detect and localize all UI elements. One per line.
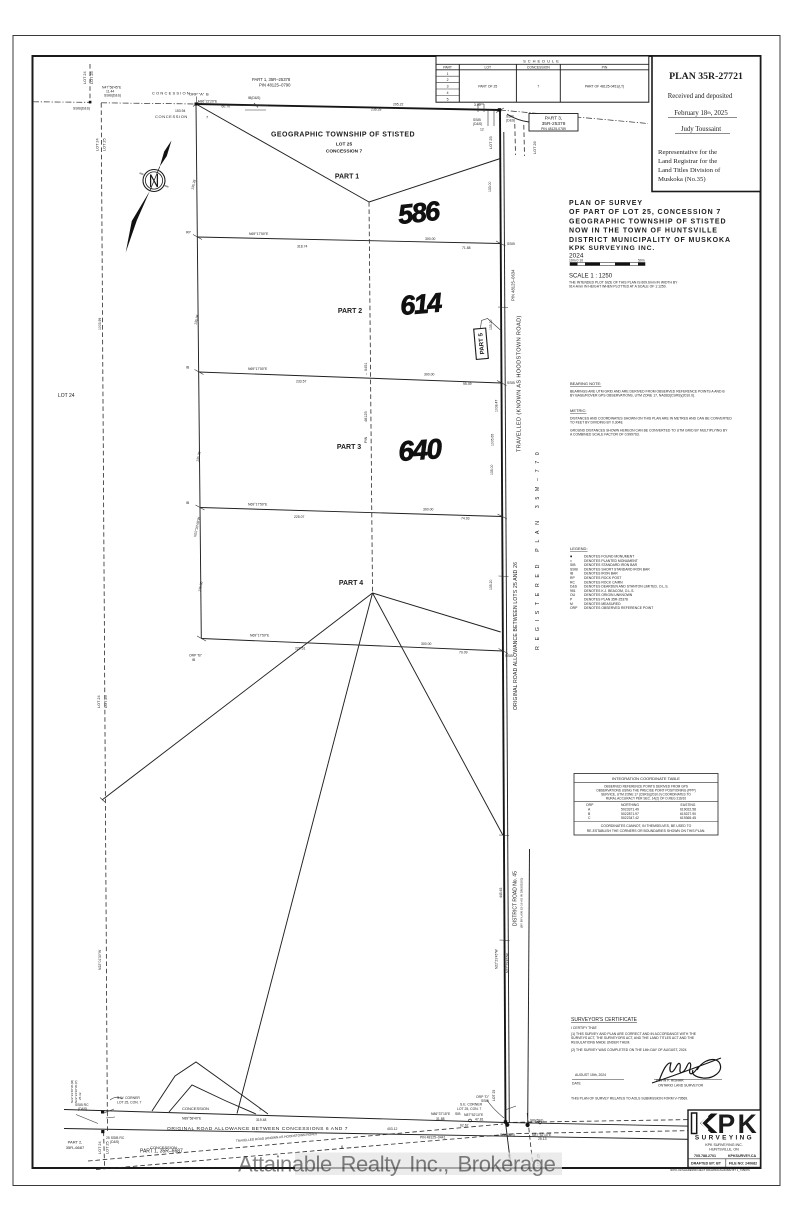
svg-text:PART 1, 35R–25378: PART 1, 35R–25378 xyxy=(252,77,291,82)
svg-text:TRAVELLED (KNOWN AS HOODSTOWN: TRAVELLED (KNOWN AS HOODSTOWN ROAD) xyxy=(517,315,523,452)
svg-text:640: 640 xyxy=(397,433,443,467)
svg-text:N69°17'50"E: N69°17'50"E xyxy=(250,634,270,638)
svg-text:CONCESSION: CONCESSION xyxy=(152,91,191,96)
svg-text:Received and deposited: Received and deposited xyxy=(668,93,733,100)
svg-text:295.22: 295.22 xyxy=(393,103,403,107)
svg-text:PART 1, 35R–6687: PART 1, 35R–6687 xyxy=(140,1149,183,1155)
svg-text:Land Registrar for the: Land Registrar for the xyxy=(658,158,717,165)
svg-text:A COMBINED SCALE FACTOR OF 0.9: A COMBINED SCALE FACTOR OF 0.999763. xyxy=(570,433,640,437)
svg-text:OF PART OF LOT 25, CONCES: OF PART OF LOT 25, CONCESSION 7 xyxy=(569,209,721,216)
svg-text:PART: PART xyxy=(443,65,452,69)
svg-text:RP: RP xyxy=(186,231,191,235)
svg-text:N69°17'50"E: N69°17'50"E xyxy=(248,503,268,507)
svg-text:PIN 48125–0634: PIN 48125–0634 xyxy=(511,269,516,301)
svg-text:4: 4 xyxy=(447,91,449,95)
svg-text:SCALE 1 : 1250: SCALE 1 : 1250 xyxy=(569,274,613,280)
svg-text:N22°29'45"W: N22°29'45"W xyxy=(506,952,510,973)
svg-text:N87°52'10"E: N87°52'10"E xyxy=(464,1113,484,1117)
svg-text:KPKSURVEY.CA: KPKSURVEY.CA xyxy=(728,1154,756,1158)
svg-text:RE-ESTABLISH THE CORNERS OR: RE-ESTABLISH THE CORNERS OR BOUNDARIES S… xyxy=(587,829,706,833)
svg-text:N86°37'15"E: N86°37'15"E xyxy=(431,1112,451,1116)
svg-text:CONCESSION: CONCESSION xyxy=(182,1106,209,1111)
svg-text:PART 1: PART 1 xyxy=(335,174,359,181)
svg-text:586: 586 xyxy=(396,196,442,230)
svg-text:Judy Toussaint: Judy Toussaint xyxy=(681,126,721,133)
svg-text:71.88: 71.88 xyxy=(462,246,471,250)
svg-text:PART OF 25: PART OF 25 xyxy=(478,85,497,89)
svg-text:LOT 24: LOT 24 xyxy=(97,695,101,708)
svg-text:PART 3: PART 3 xyxy=(337,444,361,451)
svg-text:62.67: 62.67 xyxy=(460,1124,469,1128)
svg-text:1: 1 xyxy=(447,72,449,76)
svg-text:135.20: 135.20 xyxy=(489,320,493,330)
svg-text:229.61: 229.61 xyxy=(295,647,305,651)
svg-text:KEVIN P. RISHAR: KEVIN P. RISHAR xyxy=(656,1079,684,1083)
svg-text:95.49: 95.49 xyxy=(463,382,472,386)
svg-text:IB(D&S): IB(D&S) xyxy=(248,96,260,100)
svg-text:PART 2: PART 2 xyxy=(338,308,362,315)
svg-text:S.E. CORNER: S.E. CORNER xyxy=(460,1103,483,1107)
svg-text:3.00: 3.00 xyxy=(474,103,481,107)
svg-text:25.32: 25.32 xyxy=(78,1092,82,1100)
svg-text:236.28: 236.28 xyxy=(371,108,381,112)
svg-text:RURAL ACCURACY PER SEC. 14(: RURAL ACCURACY PER SEC. 14(2) OF O.REG 2… xyxy=(606,797,687,801)
svg-text:AUGUST 15th, 2024: AUGUST 15th, 2024 xyxy=(575,1073,606,1077)
svg-text:ONTARIO LAND SURVEYOR: ONTARIO LAND SURVEYOR xyxy=(658,1084,704,1088)
svg-text:705.788.2701: 705.788.2701 xyxy=(694,1154,716,1158)
svg-text:EASTING: EASTING xyxy=(681,803,696,807)
svg-text:300.00: 300.00 xyxy=(423,508,433,512)
svg-text:SURVEYOR'S CERTIFICATE: SURVEYOR'S CERTIFICATE xyxy=(571,1017,638,1023)
svg-text:GEOGRAPHIC TOWNSHIP OF STISTED: GEOGRAPHIC TOWNSHIP OF STISTED xyxy=(271,132,415,139)
svg-text:(BY BY-LAW 63-16 AS IN DM: (BY BY-LAW 63-16 AS IN DM305303) xyxy=(520,878,524,928)
svg-text:LOT 26: LOT 26 xyxy=(533,141,537,154)
svg-text:LOT 24: LOT 24 xyxy=(83,71,87,84)
svg-text:HUNTSVILLE, ON: HUNTSVILLE, ON xyxy=(709,1148,739,1152)
svg-text:I CERTIFY THAT:: I CERTIFY THAT: xyxy=(571,1026,597,1030)
svg-text:153.94: 153.94 xyxy=(175,109,185,113)
svg-text:PIN 48125-0789: PIN 48125-0789 xyxy=(541,127,566,131)
svg-text:300.00: 300.00 xyxy=(425,237,435,241)
svg-text:5023371.49: 5023371.49 xyxy=(621,807,639,811)
svg-text:DRAFTED BY: BT: DRAFTED BY: BT xyxy=(691,1162,722,1166)
svg-text:1005.65: 1005.65 xyxy=(491,434,495,446)
svg-text:BEARING NOTE:: BEARING NOTE: xyxy=(570,381,601,386)
svg-text:135.20: 135.20 xyxy=(489,580,493,590)
svg-text:SCHEDULE: SCHEDULE xyxy=(523,59,561,64)
svg-text:5: 5 xyxy=(447,97,449,101)
svg-text:METRIC:: METRIC: xyxy=(570,408,586,413)
svg-text:REGULATIONS MADE UNDER THEM.: REGULATIONS MADE UNDER THEM. xyxy=(571,1040,630,1044)
svg-text:Muskoka (No.35): Muskoka (No.35) xyxy=(658,176,706,183)
svg-text:50m: 50m xyxy=(638,259,645,263)
svg-text:ORP: ORP xyxy=(570,606,578,610)
svg-text:25.13: 25.13 xyxy=(538,1137,547,1141)
svg-text:35R–6687: 35R–6687 xyxy=(66,1145,85,1150)
svg-text:ORIGINAL ROAD ALLOWANCE BETWEE: ORIGINAL ROAD ALLOWANCE BETWEEN LOTS 25 … xyxy=(513,562,519,710)
svg-text:LOT 24: LOT 24 xyxy=(98,1141,102,1154)
svg-text:COORDINATES CANNOT, IN THEM: COORDINATES CANNOT, IN THEMSELVES, BE US… xyxy=(601,824,692,828)
svg-text:PIN: PIN xyxy=(602,65,608,69)
svg-text:LOT 24: LOT 24 xyxy=(58,393,75,399)
svg-text:LOT 25, CON. 7: LOT 25, CON. 7 xyxy=(457,1107,482,1111)
svg-text:SSIB(D&S): SSIB(D&S) xyxy=(73,107,90,111)
svg-text:47.81: 47.81 xyxy=(475,1118,484,1122)
svg-text:135.00: 135.00 xyxy=(490,465,494,475)
svg-text:PART 3,: PART 3, xyxy=(545,116,563,122)
svg-text:INTEGRATION COORDINATE TABLE: INTEGRATION COORDINATE TABLE xyxy=(612,776,680,781)
svg-text:LOT 25: LOT 25 xyxy=(489,136,493,149)
svg-text:3: 3 xyxy=(447,85,449,89)
svg-text:133.00: 133.00 xyxy=(488,182,492,192)
svg-text:B: B xyxy=(206,92,209,97)
svg-text:NOW IN THE TOWN OF HUNTSV: NOW IN THE TOWN OF HUNTSVILLE xyxy=(569,228,718,235)
svg-text:ORIGINAL ROAD ALLOWANCE BETWEE: ORIGINAL ROAD ALLOWANCE BETWEEN CONCESSI… xyxy=(167,1126,348,1132)
svg-text:N86°22'20"E: N86°22'20"E xyxy=(198,100,218,104)
svg-text:LOT 25: LOT 25 xyxy=(106,1141,110,1154)
svg-text:31.88: 31.88 xyxy=(436,1117,445,1121)
svg-text:SSIB: SSIB xyxy=(507,381,515,385)
svg-text:(D&S): (D&S) xyxy=(78,1107,87,1111)
svg-text:70.09: 70.09 xyxy=(459,651,468,655)
svg-text:ORP "B": ORP "B" xyxy=(189,654,203,658)
svg-text:619365.45: 619365.45 xyxy=(680,816,696,820)
svg-text:5022347.42: 5022347.42 xyxy=(621,816,639,820)
svg-text:(2) THE SURVEY WAS COMPLETED O: (2) THE SURVEY WAS COMPLETED ON THE 14th… xyxy=(571,1048,687,1052)
svg-text:PART OF 48125-0451(LT): PART OF 48125-0451(LT) xyxy=(585,85,624,89)
svg-text:(D&S): (D&S) xyxy=(506,119,515,123)
svg-text:12: 12 xyxy=(480,128,484,132)
svg-text:619227.90: 619227.90 xyxy=(680,812,696,816)
svg-text:CONCESSION 7: CONCESSION 7 xyxy=(326,149,363,155)
svg-text:7: 7 xyxy=(537,85,539,89)
svg-text:SSIB: SSIB xyxy=(505,654,513,658)
svg-text:KPK SURVEYING INC.: KPK SURVEYING INC. xyxy=(569,245,655,252)
svg-text:233.57: 233.57 xyxy=(296,380,306,384)
svg-text:N69°17'50"E: N69°17'50"E xyxy=(248,367,268,371)
svg-text:PLAN 35R-27721: PLAN 35R-27721 xyxy=(669,71,743,82)
svg-text:BY BASE/ROVER GPS OBSERVATIONS: BY BASE/ROVER GPS OBSERVATIONS, UTM ZONE… xyxy=(570,394,695,398)
svg-text:REGISTERED PLAN 35M–770: REGISTERED PLAN 35M–770 xyxy=(535,447,541,650)
svg-text:CONCESSION: CONCESSION xyxy=(527,65,550,69)
svg-text:SURVEYING: SURVEYING xyxy=(695,1135,754,1142)
svg-text:SSIB(AG): SSIB(AG) xyxy=(500,1133,515,1137)
svg-text:SIB: SIB xyxy=(455,1112,461,1116)
svg-text:ORP "A": ORP "A" xyxy=(189,92,205,97)
svg-text:N22°23'45"W: N22°23'45"W xyxy=(495,948,499,969)
svg-text:\\KPK-01\SHARE\PROJECT DRAWING: \\KPK-01\SHARE\PROJECT DRAWINGS\240682 B… xyxy=(670,1168,750,1172)
svg-text:300.00: 300.00 xyxy=(421,642,431,646)
svg-text:300.00: 300.00 xyxy=(424,373,434,377)
svg-text:DATE: DATE xyxy=(572,1082,582,1086)
svg-text:LOT 25: LOT 25 xyxy=(492,1090,496,1101)
svg-text:ORP: ORP xyxy=(586,803,594,807)
svg-text:FILE NO: 240682: FILE NO: 240682 xyxy=(729,1162,757,1166)
svg-text:N89°58'40"E: N89°58'40"E xyxy=(182,1117,202,1121)
svg-text:NORTHING: NORTHING xyxy=(621,803,639,807)
svg-text:914.4mm IN HEIGHT WHEN PLOTTED: 914.4mm IN HEIGHT WHEN PLOTTED AT A SCAL… xyxy=(569,285,667,289)
svg-text:403.12: 403.12 xyxy=(387,1127,397,1131)
svg-text:GEOGRAPHIC TOWNSHIP OF STIS: GEOGRAPHIC TOWNSHIP OF STISTED xyxy=(569,218,726,225)
svg-text:LOT 25, CON. 7: LOT 25, CON. 7 xyxy=(117,1101,142,1105)
svg-text:SSIB: SSIB xyxy=(507,242,515,246)
svg-text:KPK SURVEYING INC.: KPK SURVEYING INC. xyxy=(705,1143,742,1147)
svg-text:LEGEND:: LEGEND: xyxy=(570,546,588,551)
svg-text:74.93: 74.93 xyxy=(461,517,470,521)
svg-text:48125: 48125 xyxy=(364,411,368,422)
svg-text:(D&S): (D&S) xyxy=(473,122,482,126)
svg-text:N69°17'50"E: N69°17'50"E xyxy=(249,232,269,236)
svg-text:DISTRICT MUNICIPALITY OF MU: DISTRICT MUNICIPALITY OF MUSKOKA xyxy=(569,237,731,244)
svg-text:Representative for the: Representative for the xyxy=(658,149,717,156)
svg-text:PART 2,: PART 2, xyxy=(68,1140,83,1145)
svg-text:SIB(691): SIB(691) xyxy=(530,1119,543,1123)
svg-text:445.63: 445.63 xyxy=(499,888,503,898)
svg-text:Land Titles Division of: Land Titles Division of xyxy=(658,167,721,174)
svg-text:N22°01'30"W: N22°01'30"W xyxy=(98,949,102,970)
svg-text:DISTRICT ROAD No. 45: DISTRICT ROAD No. 45 xyxy=(513,871,519,926)
svg-text:2: 2 xyxy=(447,78,449,82)
svg-text:PIN 48125–0441: PIN 48125–0441 xyxy=(420,1136,446,1140)
svg-text:319.48: 319.48 xyxy=(256,1118,266,1122)
svg-text:LOT 25: LOT 25 xyxy=(90,71,94,84)
svg-text:LOT 25: LOT 25 xyxy=(336,142,353,148)
svg-text:(D&S): (D&S) xyxy=(110,1140,119,1144)
svg-text:1008.47: 1008.47 xyxy=(495,400,499,412)
svg-text:LOT 24: LOT 24 xyxy=(96,138,100,151)
svg-text:619022.58: 619022.58 xyxy=(680,807,696,811)
svg-text:60.70: 60.70 xyxy=(222,105,231,109)
svg-text:THIS PLAN OF SURVEY RELATES TO: THIS PLAN OF SURVEY RELATES TO AOLS SUBM… xyxy=(571,1097,688,1101)
svg-text:318.74: 318.74 xyxy=(297,245,307,249)
svg-text:10m 0 10: 10m 0 10 xyxy=(569,259,583,263)
svg-text:PIN 48125–0790: PIN 48125–0790 xyxy=(259,83,291,88)
svg-text:LOT: LOT xyxy=(484,65,491,69)
svg-text:5022871.97: 5022871.97 xyxy=(621,812,639,816)
svg-text:TO FEET BY DIVIDING BY 0.3048.: TO FEET BY DIVIDING BY 0.3048. xyxy=(570,421,623,425)
svg-text:LOT 25: LOT 25 xyxy=(104,695,108,708)
svg-text:CONCESSION: CONCESSION xyxy=(155,114,188,119)
svg-text:S.W. CORNER: S.W. CORNER xyxy=(117,1096,140,1100)
svg-text:614: 614 xyxy=(399,287,443,321)
svg-text:LOT 25: LOT 25 xyxy=(103,138,107,151)
svg-text:PART 4: PART 4 xyxy=(339,580,363,587)
svg-text:PLAN OF SURVEY: PLAN OF SURVEY xyxy=(569,200,643,207)
svg-text:February 18th, 2025: February 18th, 2025 xyxy=(674,110,728,117)
svg-text:DENOTES OBSERVED REFERENCE PO: DENOTES OBSERVED REFERENCE POINT xyxy=(584,606,653,610)
svg-text:PIN: PIN xyxy=(364,436,368,443)
svg-text:Attainable Realty Inc., Broker: Attainable Realty Inc., Brokerage xyxy=(238,1152,556,1177)
svg-text:0451: 0451 xyxy=(364,363,368,371)
svg-text:225.07: 225.07 xyxy=(294,515,304,519)
svg-text:SSIB: SSIB xyxy=(481,1099,489,1103)
svg-text:1003.99: 1003.99 xyxy=(98,318,102,330)
svg-text:SSIB(D&S): SSIB(D&S) xyxy=(104,94,121,98)
